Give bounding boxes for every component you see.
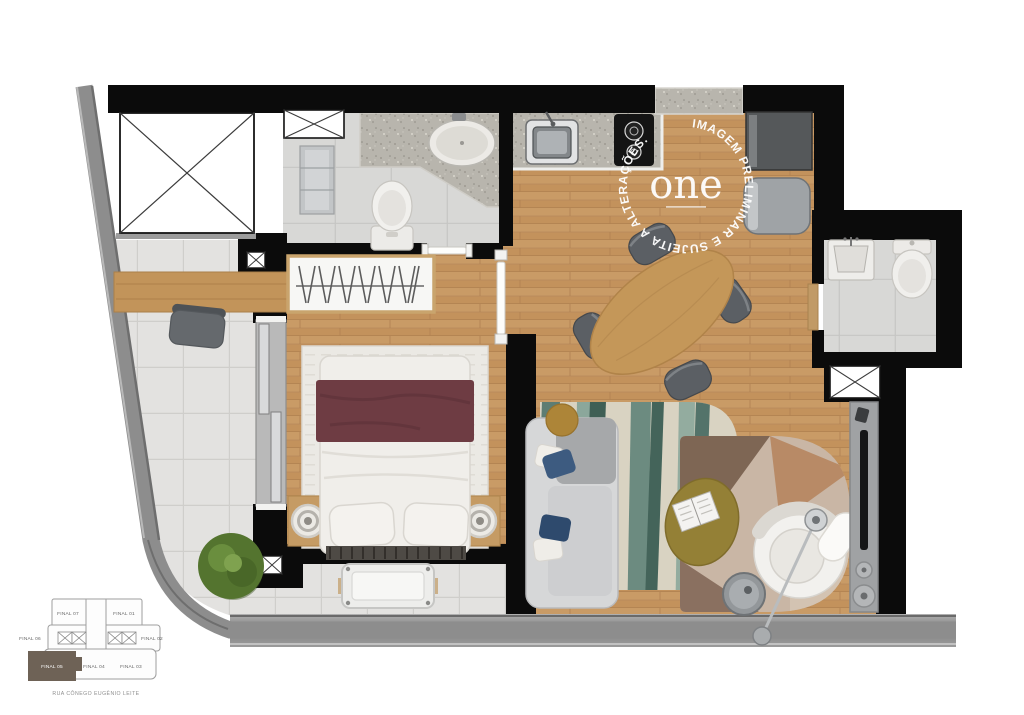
vent-shaft-balcony-icon (262, 556, 282, 574)
wall-living-right (878, 366, 906, 618)
toilet-2 (892, 240, 932, 298)
vent-shaft-bedroom-icon (247, 252, 265, 268)
watermark-logo: one (649, 162, 723, 208)
balcony-bench (338, 564, 438, 608)
bathroom-2-sink (828, 237, 874, 280)
floorplan-image: IMAGEM PRELIMINAR E SUJEITA A ALTERAÇÕES… (0, 0, 1024, 715)
closet-hangers (288, 256, 434, 312)
keyplan-street-label: RUA CÔNEGO EUGÊNIO LEITE (52, 689, 139, 697)
wall-bath2-left-upper (812, 240, 824, 284)
wall-kitchen-right (814, 113, 840, 213)
keyplan-core (86, 599, 106, 649)
keyplan-label-final07: FINAL 07 (57, 611, 79, 617)
keyplan: FINAL 07 FINAL 01 FINAL 06 FINAL 02 FINA… (19, 599, 163, 697)
terrace-counter (114, 272, 290, 312)
wall-top-right (743, 85, 844, 113)
bed-throw (316, 380, 474, 442)
toilet-1 (371, 181, 413, 250)
keyplan-label-final02: FINAL 02 (141, 636, 163, 642)
speaker-left-icon (292, 505, 324, 537)
pillow-blue (538, 514, 572, 543)
vent-shaft-bath2-icon (830, 366, 880, 398)
keyplan-label-final05: FINAL 05 (41, 664, 63, 670)
keyplan-label-final01: FINAL 01 (113, 611, 135, 617)
floorplan-svg: IMAGEM PRELIMINAR E SUJEITA A ALTERAÇÕES… (0, 0, 1024, 715)
wall-top-left (108, 85, 655, 113)
bathroom-2-door (808, 284, 818, 330)
tv-console (850, 402, 878, 612)
sliding-door-terrace (256, 316, 286, 510)
wall-bath1-kitchen (499, 113, 513, 246)
terrace-chair (168, 303, 226, 348)
terrace-floor-gap (256, 586, 286, 616)
pouf-mustard (546, 404, 578, 436)
kitchen-sink (526, 112, 578, 164)
headboard (326, 546, 466, 560)
keyplan-label-final04: FINAL 04 (83, 664, 105, 670)
wall-bath2-top (812, 210, 962, 240)
pillow (329, 502, 396, 548)
wall-bath2-left-lower (812, 330, 824, 352)
bedroom-door (495, 250, 507, 344)
wall-bath2-right (936, 240, 962, 354)
vent-shaft-top-icon (284, 110, 344, 138)
pillow (403, 502, 469, 547)
keyplan-label-final03: FINAL 03 (120, 664, 142, 670)
side-table (723, 573, 765, 615)
tv (860, 430, 868, 550)
keyplan-label-final06: FINAL 06 (19, 636, 41, 642)
bed (316, 356, 474, 560)
entry-door-sill (655, 88, 743, 114)
watermark-logo-underline (666, 206, 706, 208)
faucet-icon (452, 113, 466, 121)
elevator-shaft-icon (120, 113, 254, 233)
sofa (526, 404, 618, 608)
balcony (338, 564, 438, 608)
